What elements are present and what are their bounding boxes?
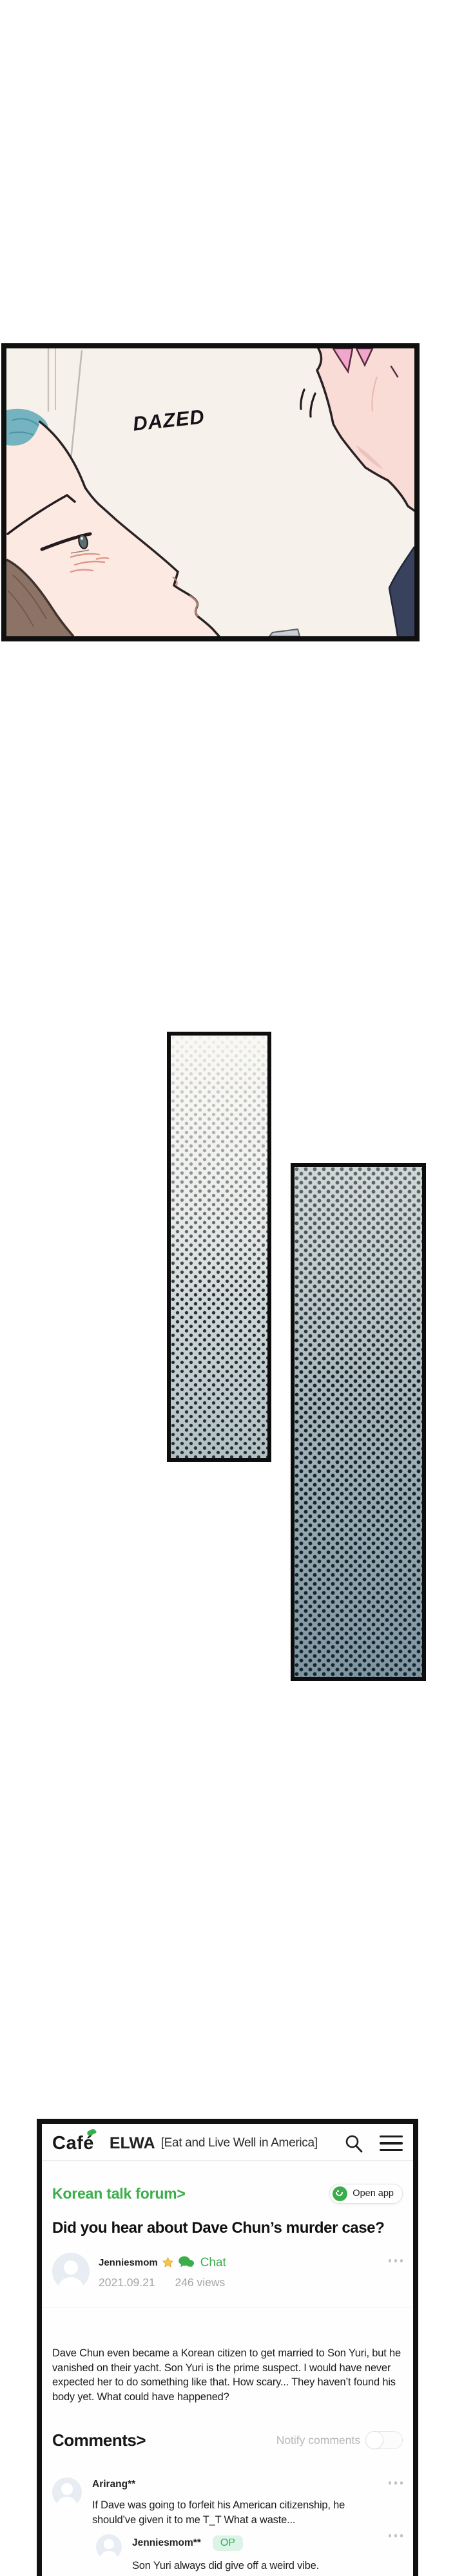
cafe-logo-text: Café: [52, 2133, 94, 2154]
comment-text: If Dave was going to forfeit his America…: [92, 2498, 371, 2528]
post-views: 246 views: [175, 2276, 225, 2289]
phone-forum-frame: Café ELWA [Eat and Live Well in America]…: [37, 2119, 418, 2576]
commenter-avatar[interactable]: [52, 2477, 82, 2507]
commenter-name: Arirang**: [92, 2479, 371, 2490]
chat-button[interactable]: Chat: [200, 2256, 226, 2270]
smiley-icon: [333, 2186, 347, 2201]
post-more-icon[interactable]: [389, 2259, 403, 2290]
halftone-panel-dark: [291, 1163, 426, 1681]
post-author-row: Jenniesmom Chat 2021.09.21 246 views: [52, 2253, 403, 2290]
hamburger-menu-icon[interactable]: [380, 2136, 403, 2151]
toggle-knob: [365, 2431, 383, 2449]
webtoon-page: DAZED Café ELWA [Eat and Live Well in Am…: [0, 0, 464, 2576]
comic-panel: DAZED: [1, 343, 420, 641]
chat-bubbles-icon[interactable]: [178, 2255, 195, 2270]
author-name: Jenniesmom: [99, 2257, 158, 2268]
halftone-panel-light: [167, 1032, 271, 1462]
comments-heading: Comments>: [52, 2430, 146, 2450]
post-divider: [42, 2307, 413, 2307]
app-header: Café ELWA [Eat and Live Well in America]: [52, 2126, 403, 2160]
star-icon: [162, 2257, 174, 2269]
forum-breadcrumb-link[interactable]: Korean talk forum>: [52, 2185, 186, 2202]
cafe-logo[interactable]: Café: [52, 2133, 94, 2154]
comic-art: [6, 348, 414, 636]
reply-author-name: Jenniesmom**: [132, 2537, 201, 2549]
open-app-label: Open app: [353, 2188, 394, 2199]
community-name: ELWA: [110, 2134, 155, 2153]
community-tagline: [Eat and Live Well in America]: [161, 2136, 318, 2150]
reply-more-icon[interactable]: [389, 2534, 403, 2573]
comment-more-icon[interactable]: [389, 2481, 403, 2528]
open-app-button[interactable]: Open app: [329, 2184, 403, 2204]
post-body: Dave Chun even became a Korean citizen t…: [52, 2346, 408, 2404]
forum-breadcrumb-row: Korean talk forum> Open app: [52, 2183, 403, 2204]
notify-toggle[interactable]: [365, 2431, 403, 2449]
forum-screen: Café ELWA [Eat and Live Well in America]…: [42, 2126, 413, 2573]
search-icon[interactable]: [343, 2133, 364, 2154]
post-date: 2021.09.21: [99, 2276, 155, 2289]
author-avatar[interactable]: [52, 2253, 90, 2290]
comments-header-row: Comments> Notify comments: [52, 2430, 403, 2450]
reply-avatar[interactable]: [96, 2534, 122, 2560]
op-badge: OP: [213, 2535, 243, 2551]
notify-comments-label: Notify comments: [276, 2434, 360, 2447]
comment-item: Arirang** If Dave was going to forfeit h…: [52, 2477, 403, 2528]
post-title: Did you hear about Dave Chun’s murder ca…: [52, 2219, 403, 2239]
reply-text: Son Yuri always did give off a weird vib…: [132, 2559, 319, 2573]
reply-item: Jenniesmom** OP Son Yuri always did give…: [96, 2534, 403, 2573]
leaf-icon: [86, 2128, 97, 2136]
header-divider: [42, 2160, 413, 2161]
